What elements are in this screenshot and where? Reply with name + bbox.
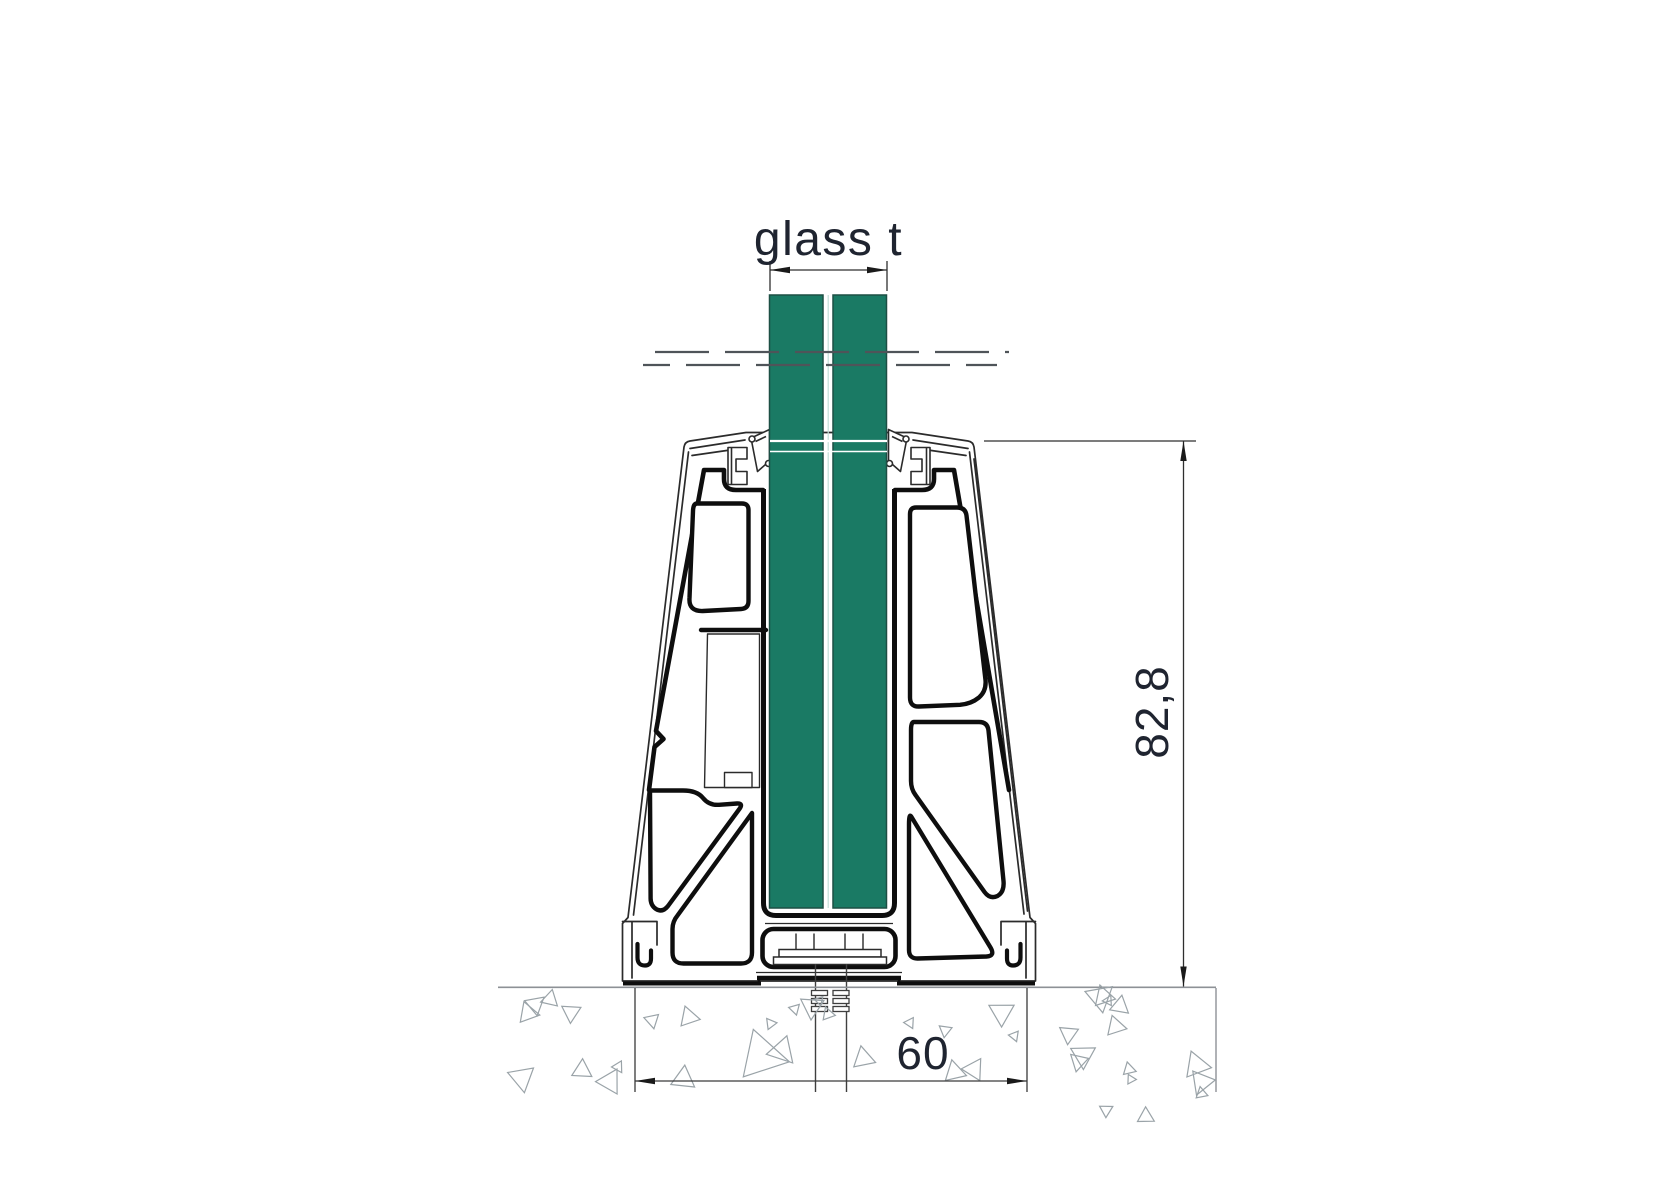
- glass-thickness-label: glass t: [754, 213, 903, 266]
- glass-pane-left: [770, 295, 824, 908]
- break-lines: [643, 352, 1009, 365]
- embed-width-label: 60: [896, 1027, 949, 1079]
- balustrade-profile-section-drawing: glass t 82,8 60: [0, 0, 1680, 1188]
- glass-panel: [770, 295, 888, 908]
- concrete-foundation: [498, 985, 1216, 1122]
- profile-outer-outline: [623, 433, 1036, 982]
- cavity-upper-left: [689, 504, 748, 612]
- clamp-plate-upper: [779, 950, 881, 958]
- profile-height-label: 82,8: [1126, 665, 1178, 759]
- dim-glass-thickness: glass t: [754, 213, 903, 291]
- clamp-plate-lower: [774, 957, 887, 965]
- glass-pane-right: [833, 295, 887, 908]
- concrete-hatch-triangles: [508, 985, 1216, 1122]
- adjustment-slot-left: [705, 634, 760, 788]
- technical-drawing-page: glass t 82,8 60: [0, 0, 1680, 1188]
- clamp-mechanism: [763, 929, 896, 967]
- dim-embed-width: 60: [635, 988, 1027, 1092]
- base-profile-body: [623, 433, 1036, 982]
- bolt-thread-marks: [812, 991, 850, 1012]
- anchor-bolt: [812, 964, 850, 1092]
